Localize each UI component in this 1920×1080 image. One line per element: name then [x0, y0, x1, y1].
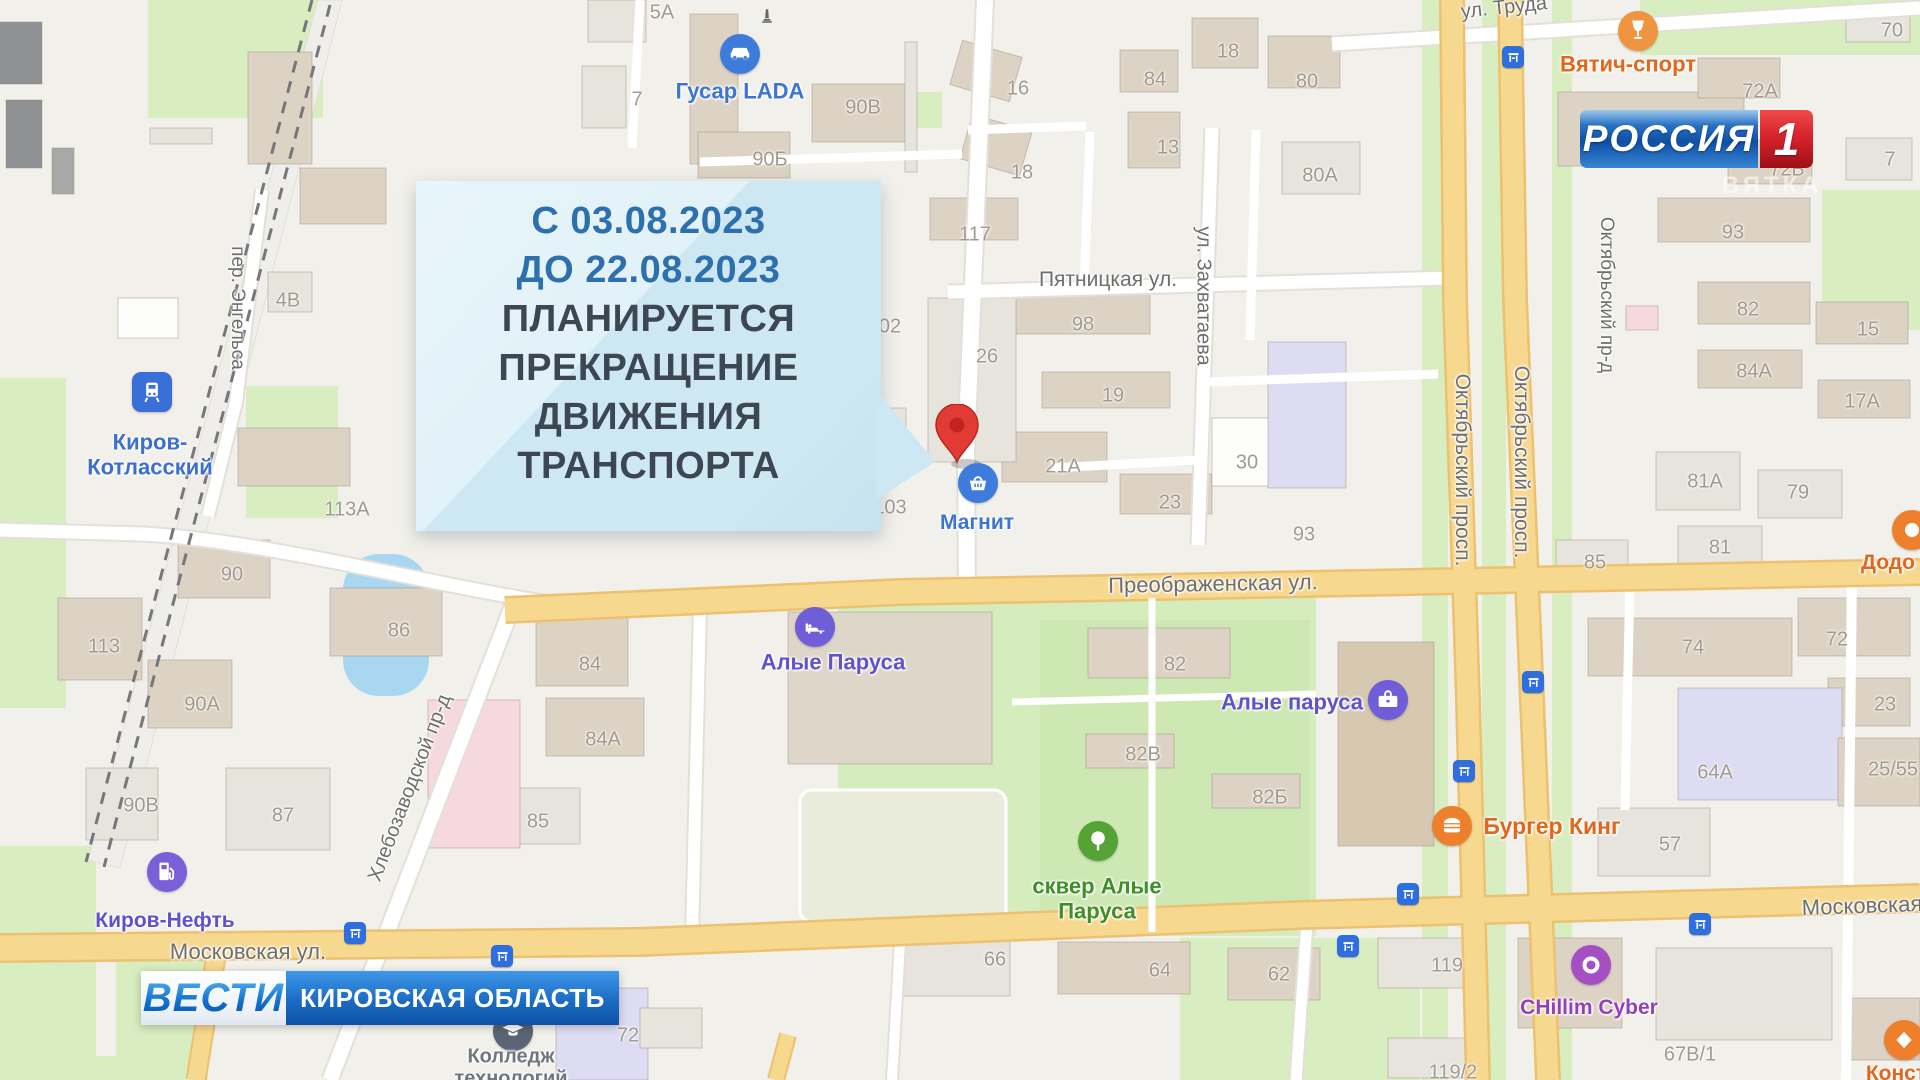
street-label: Хлебозаводской пр-д	[364, 691, 457, 884]
callout-date-to: ДО 22.08.2023	[517, 246, 781, 295]
building-number: 18	[1217, 41, 1239, 64]
poi-alye-parusa-hotel-label: Алые Паруса	[761, 651, 906, 676]
building-number: 23	[1874, 694, 1896, 717]
building-number: 18	[1011, 162, 1033, 185]
building-number: 119/2	[1429, 1062, 1478, 1080]
building-number: 117	[959, 224, 991, 247]
building-number: 80А	[1302, 165, 1338, 188]
callout-text-1: ПЛАНИРУЕТСЯ	[502, 295, 795, 344]
tv-frame: Пятницкая ул.ул. ЗахватаеваОктябрьский п…	[0, 0, 1920, 1080]
street-label: Преображенская ул.	[1108, 569, 1318, 599]
poi-vyatich-sport-icon[interactable]	[1618, 11, 1658, 51]
poi-dodo-label: Додо	[1861, 551, 1915, 575]
channel-name-text: РОССИЯ	[1583, 118, 1755, 160]
building-number: 30	[1236, 452, 1258, 475]
banner-region: КИРОВСКАЯ ОБЛАСТЬ	[286, 971, 619, 1025]
building-number: 57	[1659, 834, 1681, 857]
poi-dodo-icon[interactable]	[1892, 510, 1920, 550]
street-label: Московская	[1801, 891, 1920, 921]
poi-gusar-lada-icon[interactable]	[720, 34, 760, 74]
building-number: 82	[1164, 654, 1186, 677]
banner-program-text: ВЕСТИ	[143, 976, 284, 1021]
poi-alye-parusa-mall-label: Алые паруса	[1221, 691, 1363, 716]
street-label: Октябрьский пр-д	[1595, 217, 1617, 373]
building-number: 7	[631, 89, 642, 112]
poi-magnit-icon[interactable]	[958, 463, 998, 503]
gtrk-watermark: ВЯТКА	[1722, 172, 1823, 200]
street-label: Пятницкая ул.	[1039, 268, 1177, 292]
building-number: 90Б	[752, 149, 787, 172]
building-number: 85	[1584, 552, 1606, 575]
poi-konst-icon[interactable]	[1884, 1020, 1920, 1060]
channel-logo-name: РОССИЯ	[1580, 110, 1758, 168]
building-number: 81	[1709, 537, 1731, 560]
banner-program: ВЕСТИ	[141, 971, 286, 1025]
poi-railway-station-icon[interactable]	[132, 372, 172, 412]
poi-magnit-label: Магнит	[940, 511, 1014, 535]
building-number: 4В	[276, 290, 300, 313]
building-number: 5А	[650, 2, 674, 25]
building-number: 93	[1293, 524, 1315, 547]
poi-skver-alye-parusa-label: сквер Алые Паруса	[1032, 874, 1161, 923]
poi-alye-parusa-hotel-icon[interactable]	[795, 607, 835, 647]
building-number: 82	[1737, 299, 1759, 322]
building-number: 19	[1102, 385, 1124, 408]
street-label: Октябрьский просп.	[1509, 366, 1533, 559]
transit-stop-icon[interactable]	[491, 945, 513, 967]
building-number: 84А	[1736, 361, 1772, 384]
building-number: 70	[1881, 20, 1903, 43]
building-number: 87	[272, 805, 294, 828]
poi-burger-king-icon[interactable]	[1432, 806, 1472, 846]
building-number: 90В	[123, 795, 159, 818]
banner-region-text: КИРОВСКАЯ ОБЛАСТЬ	[300, 983, 605, 1014]
callout-text-3: ДВИЖЕНИЯ	[535, 393, 763, 442]
building-number: 26	[976, 346, 998, 369]
transit-stop-icon[interactable]	[1689, 913, 1711, 935]
building-number: 113	[88, 636, 120, 659]
building-number: 80	[1296, 71, 1318, 94]
building-number: 74	[1682, 637, 1704, 660]
transit-stop-icon[interactable]	[1502, 46, 1524, 68]
building-number: 21А	[1045, 456, 1081, 479]
channel-logo-one: 1	[1760, 110, 1813, 168]
building-number: 17А	[1844, 391, 1880, 414]
building-number: 81А	[1687, 471, 1723, 494]
building-number: 84	[579, 654, 601, 677]
building-number: 113А	[324, 499, 369, 522]
building-number: 86	[388, 620, 410, 643]
building-number: 90	[221, 564, 243, 587]
building-number: 62	[1268, 964, 1290, 987]
building-number: 67В/1	[1664, 1044, 1716, 1067]
building-number: 82Б	[1252, 787, 1287, 810]
callout-text-4: ТРАНСПОРТА	[517, 442, 780, 491]
transit-stop-icon[interactable]	[1453, 760, 1475, 782]
building-number: 16	[1007, 78, 1029, 101]
building-number: 90А	[184, 694, 220, 717]
building-number: 79	[1787, 482, 1809, 505]
building-number: 25/55	[1868, 759, 1918, 782]
poi-vyatich-sport-label: Вятич-спорт	[1560, 53, 1696, 78]
building-number: 7	[1884, 149, 1895, 172]
street-label: пер. Энгельса	[226, 246, 248, 370]
building-number: 85	[527, 811, 549, 834]
street-label: ул. Захватаева	[1192, 226, 1215, 365]
transit-stop-icon[interactable]	[344, 922, 366, 944]
transit-stop-icon[interactable]	[1397, 883, 1419, 905]
building-number: 66	[984, 949, 1006, 972]
poi-college-label: Колледж технологий	[454, 1046, 567, 1080]
callout-pointer	[876, 390, 938, 502]
poi-burger-king-label: Бургер Кинг	[1483, 814, 1620, 840]
poi-chillim-cyber-icon[interactable]	[1571, 945, 1611, 985]
poi-skver-alye-parusa-icon[interactable]	[1078, 821, 1118, 861]
poi-alye-parusa-mall-icon[interactable]	[1368, 680, 1408, 720]
poi-gusar-lada-label: Гусар LADA	[676, 80, 805, 105]
building-number: 93	[1722, 222, 1744, 245]
channel-number-text: 1	[1774, 112, 1800, 166]
building-number: 72	[617, 1025, 639, 1048]
building-number: 64А	[1697, 762, 1733, 785]
news-banner: ВЕСТИ КИРОВСКАЯ ОБЛАСТЬ	[141, 971, 619, 1025]
street-label: Московская ул.	[170, 939, 326, 965]
poi-chillim-cyber-label: CHillim Cyber	[1520, 996, 1658, 1020]
channel-logo: РОССИЯ 1	[1580, 110, 1813, 168]
building-number: 64	[1149, 960, 1171, 983]
traffic-closure-callout: С 03.08.2023 ДО 22.08.2023 ПЛАНИРУЕТСЯ П…	[416, 181, 881, 531]
building-number: 84А	[585, 729, 621, 752]
building-number: 13	[1157, 137, 1179, 160]
building-number: 72	[1826, 629, 1848, 652]
building-number: 23	[1159, 492, 1181, 515]
poi-kirov-neft-label: Киров-Нефть	[95, 909, 234, 933]
poi-kirov-neft-icon[interactable]	[147, 852, 187, 892]
street-label: Октябрьский просп.	[1450, 374, 1474, 567]
poi-monument-icon[interactable]	[752, 1, 782, 31]
transit-stop-icon[interactable]	[1522, 671, 1544, 693]
building-number: 119	[1431, 955, 1463, 978]
building-number: 84	[1144, 69, 1166, 92]
poi-konst-label: Конст	[1866, 1062, 1920, 1080]
building-number: 90В	[845, 97, 881, 120]
building-number: 15	[1857, 319, 1879, 342]
building-number: 98	[1072, 314, 1094, 337]
building-number: 02	[879, 316, 901, 339]
callout-text-2: ПРЕКРАЩЕНИЕ	[498, 344, 798, 393]
transit-stop-icon[interactable]	[1337, 935, 1359, 957]
building-number: 72А	[1742, 81, 1778, 104]
callout-date-from: С 03.08.2023	[531, 197, 765, 246]
building-number: 82В	[1125, 744, 1161, 767]
poi-railway-station-label: Киров- Котласский	[87, 430, 213, 479]
street-label: ул. Труда	[1460, 0, 1548, 24]
map-pin[interactable]	[933, 404, 981, 466]
